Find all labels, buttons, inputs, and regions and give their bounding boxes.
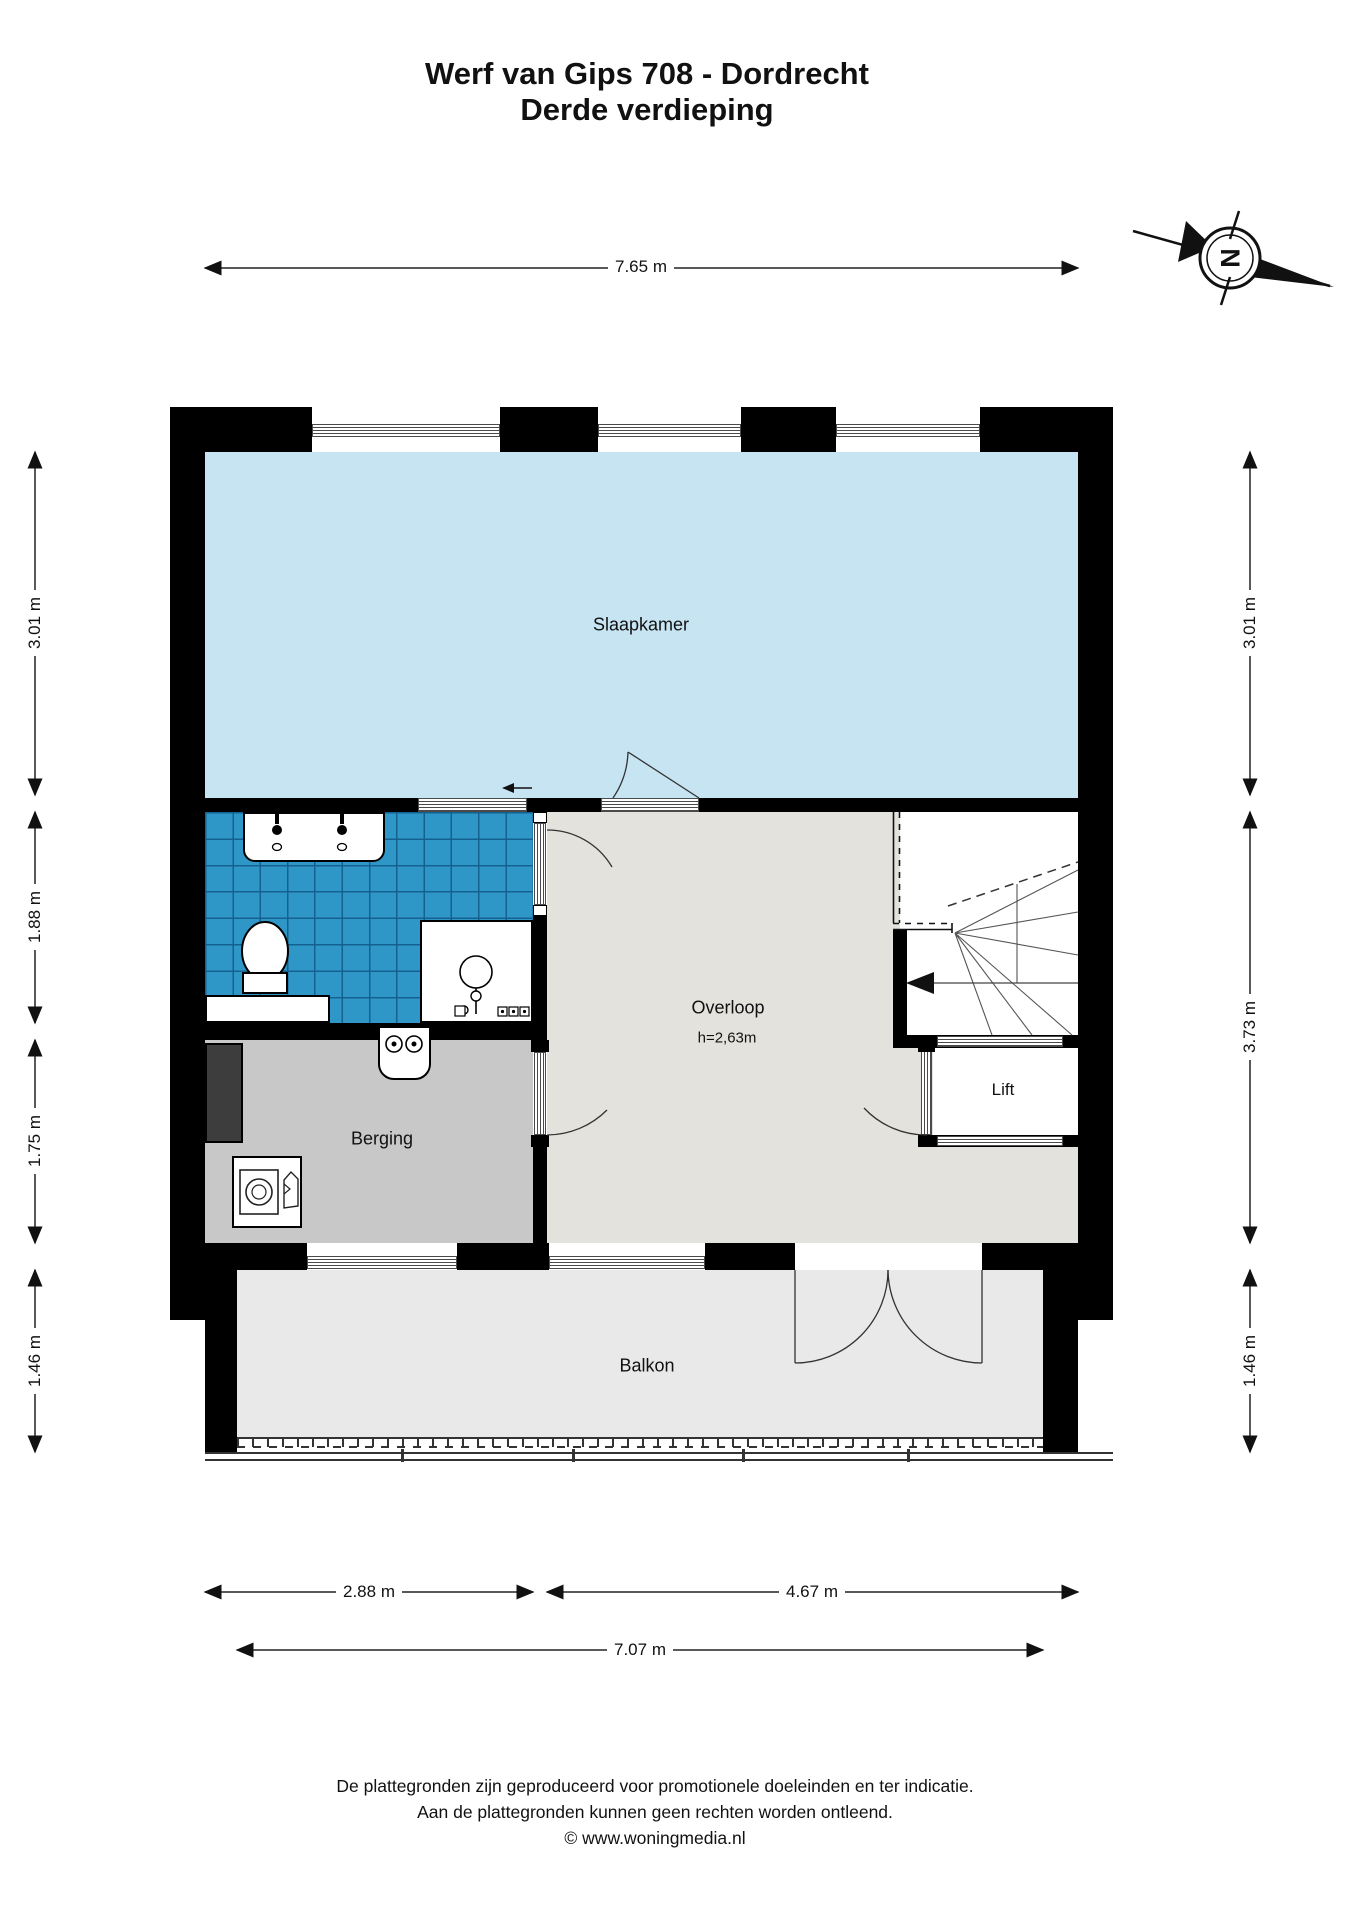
compass-north-label: N: [1216, 248, 1247, 268]
floorplan-canvas: Werf van Gips 708 - Dordrecht Derde verd…: [0, 0, 1358, 1920]
dim-left-2: 1.88 m: [25, 884, 45, 950]
room-label-overloop: Overloop: [691, 998, 764, 1019]
footer-disclaimer-2: Aan de plattegronden kunnen geen rechten…: [417, 1802, 893, 1823]
staircase: [893, 812, 1078, 1035]
plan-linework: [0, 0, 1358, 1920]
dim-left-1: 3.01 m: [25, 590, 45, 656]
room-label-berging: Berging: [351, 1129, 413, 1150]
footer-disclaimer-1: De plattegronden zijn geproduceerd voor …: [336, 1776, 973, 1797]
dim-bottom-2: 4.67 m: [779, 1582, 845, 1602]
dim-left-4: 1.46 m: [25, 1328, 45, 1394]
toilet-icon: [242, 922, 288, 993]
dim-bottom-total: 7.07 m: [607, 1640, 673, 1660]
room-label-balkon: Balkon: [619, 1356, 674, 1377]
dim-bottom-1: 2.88 m: [336, 1582, 402, 1602]
washbasin-taps: [272, 814, 347, 851]
room-label-overloop-height: h=2,63m: [698, 1030, 757, 1047]
washing-machine-icon: [240, 1170, 298, 1214]
dim-right-2: 3.73 m: [1240, 994, 1260, 1060]
dimension-lines: [35, 268, 1250, 1650]
boiler-icon: [386, 1036, 422, 1052]
slide-direction-arrow: [502, 783, 532, 793]
dim-right-3: 1.46 m: [1240, 1328, 1260, 1394]
door-swings: [547, 752, 982, 1363]
dim-top: 7.65 m: [608, 257, 674, 277]
shower-icon: [455, 956, 529, 1016]
room-label-slaapkamer: Slaapkamer: [593, 615, 689, 636]
dim-left-3: 1.75 m: [25, 1108, 45, 1174]
dim-right-1: 3.01 m: [1240, 590, 1260, 656]
room-label-lift: Lift: [992, 1080, 1015, 1100]
footer-copyright: © www.woningmedia.nl: [564, 1828, 745, 1849]
stair-direction-arrow: [906, 972, 934, 994]
